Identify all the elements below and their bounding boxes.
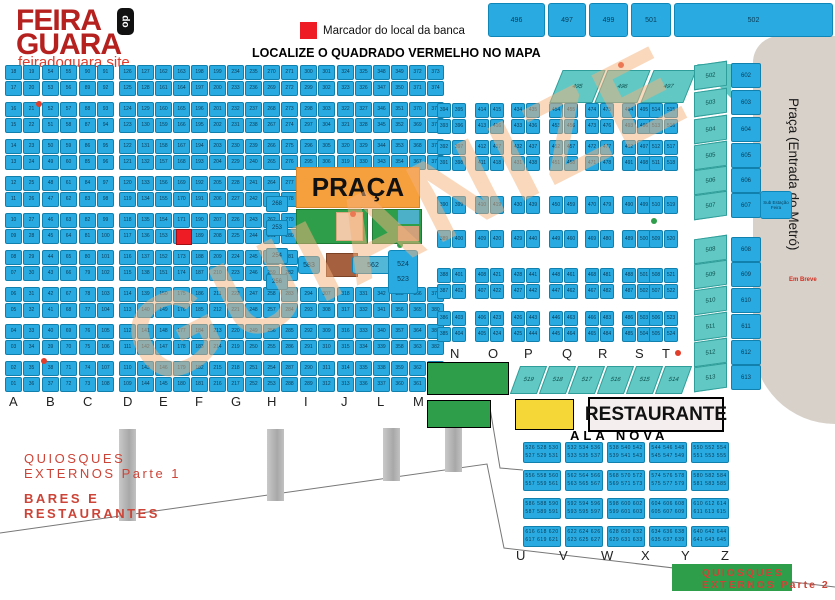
stall-cell[interactable]: 460 bbox=[564, 230, 578, 248]
ala-nova-block[interactable]: 634 636 638635 637 639 bbox=[649, 526, 687, 547]
stall-cell[interactable]: 471 bbox=[585, 156, 599, 171]
stall-cell[interactable]: 151 bbox=[155, 266, 172, 281]
stall-cell[interactable]: 266 bbox=[263, 139, 280, 154]
stall-cell[interactable]: 480 bbox=[600, 230, 614, 248]
stall-cell[interactable]: 239 bbox=[245, 139, 262, 154]
stall-cell[interactable]: 52 bbox=[42, 102, 59, 117]
stall-cell[interactable]: 418 bbox=[490, 156, 504, 171]
stall-cell[interactable]: 293 bbox=[300, 303, 317, 318]
stall-cell[interactable]: 87 bbox=[79, 118, 96, 133]
stall-cell[interactable]: 268 bbox=[263, 102, 280, 117]
stall-cell[interactable]: 520 bbox=[664, 230, 678, 248]
stall-cell[interactable]: 01 bbox=[5, 377, 22, 392]
stall-cell[interactable]: 69 bbox=[60, 324, 77, 339]
stall-cell[interactable]: 18 bbox=[5, 65, 22, 80]
stall-cell[interactable]: 470 bbox=[585, 196, 599, 214]
stall-cell[interactable]: 401 bbox=[452, 268, 466, 283]
stall-cell[interactable]: 205 bbox=[209, 176, 226, 191]
ala-nova-block[interactable]: 538 540 542539 541 543 bbox=[607, 442, 645, 463]
stall-cell[interactable]: 362 bbox=[409, 361, 426, 376]
stall-cell[interactable]: 388 bbox=[437, 268, 451, 283]
stall-cell[interactable]: 199 bbox=[209, 65, 226, 80]
stall-cell[interactable]: 230 bbox=[227, 139, 244, 154]
stall-cell[interactable]: 603 bbox=[731, 90, 761, 115]
stall-cell[interactable]: 613 bbox=[731, 365, 761, 390]
stall-cell[interactable]: 479 bbox=[600, 196, 614, 214]
stall-cell[interactable]: 99 bbox=[97, 213, 114, 228]
stall-cell[interactable]: 211 bbox=[209, 287, 226, 302]
stall-cell[interactable]: 212 bbox=[209, 303, 226, 318]
stall-cell[interactable]: 292 bbox=[300, 324, 317, 339]
stall-cell[interactable]: 325 bbox=[355, 65, 372, 80]
stall-cell[interactable]: 98 bbox=[97, 192, 114, 207]
stall-cell[interactable]: 70 bbox=[60, 340, 77, 355]
stall-cell[interactable]: 482 bbox=[600, 284, 614, 299]
stall-cell[interactable]: 285 bbox=[281, 324, 298, 339]
stall-cell[interactable]: 92 bbox=[97, 81, 114, 96]
stall-cell[interactable]: 334 bbox=[355, 340, 372, 355]
stall-cell[interactable]: 16 bbox=[5, 102, 22, 117]
stall-cell[interactable]: 154 bbox=[155, 213, 172, 228]
stall-cell[interactable]: 223 bbox=[227, 266, 244, 281]
stall-cell[interactable]: 604 bbox=[731, 117, 761, 142]
stall-cell[interactable]: 403 bbox=[452, 311, 466, 326]
stall-cell[interactable]: 390 bbox=[437, 196, 451, 214]
stall-cell[interactable]: 163 bbox=[173, 65, 190, 80]
stall-cell[interactable]: 04 bbox=[5, 324, 22, 339]
stall-cell[interactable]: 12 bbox=[5, 176, 22, 191]
stall-cell[interactable]: 426 bbox=[511, 311, 525, 326]
stall-cell[interactable]: 78 bbox=[79, 287, 96, 302]
ala-nova-block[interactable]: 550 552 554551 553 555 bbox=[691, 442, 729, 463]
stall-cell[interactable]: 357 bbox=[391, 324, 408, 339]
stall-cell[interactable]: 413 bbox=[475, 119, 489, 134]
stall-cell[interactable]: 53 bbox=[42, 81, 59, 96]
stall-cell[interactable]: 65 bbox=[60, 250, 77, 265]
stall-cell[interactable]: 607 bbox=[731, 193, 761, 218]
stall-cell[interactable]: 449 bbox=[549, 230, 563, 248]
stall-cell[interactable]: 109 bbox=[119, 377, 136, 392]
stall-cell[interactable]: 312 bbox=[318, 377, 335, 392]
stall-cell[interactable]: 145 bbox=[155, 377, 172, 392]
stall-cell[interactable]: 73 bbox=[79, 377, 96, 392]
stall-cell[interactable]: 371 bbox=[409, 81, 426, 96]
stall-cell[interactable]: 524 bbox=[664, 327, 678, 342]
stall-cell[interactable]: 85 bbox=[79, 155, 96, 170]
stall-cell[interactable]: 148 bbox=[155, 324, 172, 339]
stall-cell[interactable]: 287 bbox=[281, 361, 298, 376]
stall-cell[interactable]: 297 bbox=[300, 118, 317, 133]
stall-cell[interactable]: 338 bbox=[373, 361, 390, 376]
stall-cell[interactable]: 311 bbox=[318, 361, 335, 376]
stall-524-523[interactable]: 524 523 bbox=[388, 250, 418, 294]
stall-cell[interactable]: 50 bbox=[42, 139, 59, 154]
stall-cell[interactable]: 466 bbox=[585, 311, 599, 326]
stall-cell[interactable]: 491 bbox=[622, 156, 636, 171]
stall-cell[interactable]: 115 bbox=[119, 266, 136, 281]
stall-cell[interactable]: 127 bbox=[137, 65, 154, 80]
stall-cell[interactable]: 522 bbox=[664, 284, 678, 299]
stall-cell[interactable]: 299 bbox=[300, 81, 317, 96]
stall-cell[interactable]: 155 bbox=[155, 192, 172, 207]
stall-cell[interactable]: 602 bbox=[731, 63, 761, 88]
stall-cell[interactable]: 294 bbox=[300, 287, 317, 302]
stall-cell[interactable]: 452 bbox=[549, 140, 563, 155]
stall-cell[interactable]: 110 bbox=[119, 361, 136, 376]
stall-cell[interactable]: 347 bbox=[373, 81, 390, 96]
stall-cell[interactable]: 42 bbox=[42, 287, 59, 302]
stall-cell[interactable]: 236 bbox=[245, 81, 262, 96]
stall-cell[interactable]: 467 bbox=[585, 284, 599, 299]
stall-cell[interactable]: 435 bbox=[526, 103, 540, 118]
stall-cell[interactable]: 116 bbox=[119, 250, 136, 265]
stall-cell[interactable]: 323 bbox=[337, 81, 354, 96]
stall-cell[interactable]: 121 bbox=[119, 155, 136, 170]
stall-cell[interactable]: 324 bbox=[337, 65, 354, 80]
stall-cell[interactable]: 457 bbox=[564, 140, 578, 155]
stall-cell[interactable]: 286 bbox=[281, 340, 298, 355]
stall-cell[interactable]: 214 bbox=[209, 340, 226, 355]
stall-cell[interactable]: 254 bbox=[263, 361, 280, 376]
stall-cell[interactable]: 487 bbox=[622, 284, 636, 299]
stall-cell[interactable]: 90 bbox=[79, 65, 96, 80]
stall-cell[interactable]: 238 bbox=[245, 118, 262, 133]
stall-cell[interactable]: 88 bbox=[79, 102, 96, 117]
stall-cell[interactable]: 465 bbox=[585, 327, 599, 342]
stall-cell[interactable]: 451 bbox=[549, 156, 563, 171]
ala-nova-block[interactable]: 562 564 566563 565 567 bbox=[565, 470, 603, 491]
stall-cell[interactable]: 60 bbox=[60, 155, 77, 170]
stall-cell[interactable]: 432 bbox=[511, 140, 525, 155]
stall-cell[interactable]: 167 bbox=[173, 139, 190, 154]
stall-cell[interactable]: 97 bbox=[97, 176, 114, 191]
stall-cell[interactable]: 246 bbox=[245, 266, 262, 281]
stall-cell[interactable]: 291 bbox=[300, 340, 317, 355]
stall-cell[interactable]: 397 bbox=[452, 140, 466, 155]
stall-cell[interactable]: 133 bbox=[137, 176, 154, 191]
ala-nova-block[interactable]: 610 612 614611 613 615 bbox=[691, 498, 729, 519]
stall-cell[interactable]: 195 bbox=[191, 118, 208, 133]
stall-cell[interactable]: 130 bbox=[137, 118, 154, 133]
stall-cell[interactable]: 288 bbox=[281, 377, 298, 392]
stall-cell[interactable]: 118 bbox=[119, 213, 136, 228]
stall-cell[interactable]: 245 bbox=[245, 250, 262, 265]
stall-cell[interactable]: 255 bbox=[263, 340, 280, 355]
stall-cell[interactable]: 421 bbox=[490, 268, 504, 283]
stall-cell[interactable]: 08 bbox=[5, 250, 22, 265]
stall-cell[interactable]: 464 bbox=[564, 327, 578, 342]
ala-nova-block[interactable]: 616 618 620617 619 621 bbox=[523, 526, 561, 547]
stall-cell[interactable]: 132 bbox=[137, 155, 154, 170]
stall-cell[interactable]: 610 bbox=[731, 288, 761, 313]
stall-cell[interactable]: 241 bbox=[245, 176, 262, 191]
stall-cell[interactable]: 346 bbox=[373, 102, 390, 117]
stall-cell[interactable]: 231 bbox=[227, 118, 244, 133]
stall-cell[interactable]: 305 bbox=[318, 139, 335, 154]
stall-cell[interactable]: 201 bbox=[209, 102, 226, 117]
stall-cell[interactable]: 226 bbox=[227, 213, 244, 228]
stall-cell[interactable]: 253 bbox=[266, 220, 288, 236]
stall-cell[interactable]: 353 bbox=[391, 139, 408, 154]
stall-cell[interactable]: 224 bbox=[227, 250, 244, 265]
stall-cell[interactable]: 237 bbox=[245, 102, 262, 117]
stall-cell[interactable]: 123 bbox=[119, 118, 136, 133]
stall-cell[interactable]: 424 bbox=[490, 327, 504, 342]
stall-cell[interactable]: 234 bbox=[227, 65, 244, 80]
stall-cell[interactable]: 55 bbox=[60, 65, 77, 80]
stall-cell[interactable]: 410 bbox=[475, 196, 489, 214]
stall-cell[interactable]: 509 bbox=[694, 260, 727, 290]
stall-cell[interactable]: 442 bbox=[526, 284, 540, 299]
stall-583[interactable]: 583 bbox=[298, 256, 320, 274]
stall-cell[interactable]: 33 bbox=[23, 324, 40, 339]
stall-cell[interactable]: 208 bbox=[209, 229, 226, 244]
stall-cell[interactable]: 107 bbox=[97, 361, 114, 376]
ala-nova-block[interactable]: 568 570 572569 571 573 bbox=[607, 470, 645, 491]
stall-cell[interactable]: 182 bbox=[191, 361, 208, 376]
stall-cell[interactable]: 192 bbox=[191, 176, 208, 191]
stall-cell[interactable]: 95 bbox=[97, 139, 114, 154]
stall-cell[interactable]: 83 bbox=[79, 192, 96, 207]
stall-cell[interactable]: 251 bbox=[245, 361, 262, 376]
stall-cell[interactable]: 185 bbox=[191, 303, 208, 318]
stall-cell[interactable]: 17 bbox=[5, 81, 22, 96]
stall-cell[interactable]: 168 bbox=[173, 155, 190, 170]
stall-cell[interactable]: 298 bbox=[300, 102, 317, 117]
stall-cell[interactable]: 444 bbox=[526, 327, 540, 342]
stall-cell[interactable]: 41 bbox=[42, 303, 59, 318]
stall-cell[interactable]: 79 bbox=[79, 266, 96, 281]
stall-cell[interactable]: 404 bbox=[452, 327, 466, 342]
stall-cell[interactable]: 210 bbox=[209, 266, 226, 281]
stall-cell[interactable]: 505 bbox=[649, 327, 663, 342]
stall-cell[interactable]: 478 bbox=[600, 156, 614, 171]
stall-cell[interactable]: 122 bbox=[119, 139, 136, 154]
stall-cell[interactable]: 507 bbox=[649, 284, 663, 299]
stall-cell[interactable]: 284 bbox=[281, 303, 298, 318]
stall-cell[interactable]: 441 bbox=[526, 268, 540, 283]
stall-cell[interactable]: 513 bbox=[649, 119, 663, 134]
stall-cell[interactable]: 407 bbox=[475, 284, 489, 299]
stall-cell[interactable]: 242 bbox=[245, 192, 262, 207]
stall-cell[interactable]: 395 bbox=[452, 103, 466, 118]
stall-cell[interactable]: 253 bbox=[263, 377, 280, 392]
stall-cell[interactable]: 316 bbox=[337, 324, 354, 339]
stall-cell[interactable]: 63 bbox=[60, 213, 77, 228]
stall-cell[interactable]: 48 bbox=[42, 176, 59, 191]
stall-cell[interactable]: 419 bbox=[490, 196, 504, 214]
stall-cell[interactable]: 137 bbox=[137, 250, 154, 265]
stall-cell[interactable]: 187 bbox=[191, 266, 208, 281]
stall-cell[interactable]: 510 bbox=[694, 286, 727, 316]
stall-cell[interactable]: 51 bbox=[42, 118, 59, 133]
stall-cell[interactable]: 58 bbox=[60, 118, 77, 133]
stall-cell[interactable]: 416 bbox=[490, 119, 504, 134]
stall-cell[interactable]: 198 bbox=[191, 65, 208, 80]
stall-cell[interactable]: 178 bbox=[173, 340, 190, 355]
stall-cell[interactable]: 391 bbox=[437, 156, 451, 171]
stall-cell[interactable]: 128 bbox=[137, 81, 154, 96]
stall-cell[interactable]: 181 bbox=[191, 377, 208, 392]
stall-cell[interactable]: 164 bbox=[173, 81, 190, 96]
stall-cell[interactable]: 494 bbox=[622, 103, 636, 118]
stall-cell[interactable]: 247 bbox=[245, 287, 262, 302]
stall-cell[interactable]: 213 bbox=[209, 324, 226, 339]
stall-cell[interactable]: 352 bbox=[391, 118, 408, 133]
stall-cell[interactable]: 386 bbox=[437, 311, 451, 326]
stall-cell[interactable]: 143 bbox=[137, 361, 154, 376]
stall-cell[interactable]: 322 bbox=[337, 102, 354, 117]
stall-cell[interactable]: 358 bbox=[391, 340, 408, 355]
stall-cell[interactable]: 54 bbox=[42, 65, 59, 80]
stall-cell[interactable]: 106 bbox=[97, 340, 114, 355]
stall-cell[interactable]: 43 bbox=[42, 266, 59, 281]
stall-cell[interactable]: 104 bbox=[97, 303, 114, 318]
stall-cell[interactable]: 344 bbox=[373, 139, 390, 154]
stall-cell[interactable]: 492 bbox=[622, 140, 636, 155]
stall-cell[interactable]: 434 bbox=[511, 103, 525, 118]
stall-cell[interactable]: 497 bbox=[640, 70, 696, 103]
stall-cell[interactable]: 436 bbox=[526, 119, 540, 134]
stall-cell[interactable]: 29 bbox=[23, 250, 40, 265]
stall-cell[interactable]: 374 bbox=[427, 81, 444, 96]
stall-cell[interactable]: 14 bbox=[5, 139, 22, 154]
ala-nova-block[interactable]: 556 558 560557 559 561 bbox=[523, 470, 561, 491]
stall-cell[interactable]: 427 bbox=[511, 284, 525, 299]
stall-cell[interactable]: 503 bbox=[694, 88, 727, 118]
stall-cell[interactable]: 10 bbox=[5, 213, 22, 228]
stall-cell[interactable]: 370 bbox=[409, 102, 426, 117]
stall-cell[interactable]: 264 bbox=[263, 176, 280, 191]
stall-cell[interactable]: 455 bbox=[564, 103, 578, 118]
stall-cell[interactable]: 473 bbox=[585, 119, 599, 134]
stall-cell[interactable]: 256 bbox=[266, 274, 288, 290]
stall-cell[interactable]: 05 bbox=[5, 303, 22, 318]
stall-cell[interactable]: 611 bbox=[731, 314, 761, 339]
ala-nova-block[interactable]: 592 594 596593 595 597 bbox=[565, 498, 603, 519]
stall-cell[interactable]: 235 bbox=[245, 65, 262, 80]
stall-cell[interactable]: 468 bbox=[585, 268, 599, 283]
ala-nova-block[interactable]: 604 606 608605 607 609 bbox=[649, 498, 687, 519]
stall-cell[interactable]: 125 bbox=[119, 81, 136, 96]
stall-cell[interactable]: 360 bbox=[391, 377, 408, 392]
stall-cell[interactable]: 363 bbox=[409, 340, 426, 355]
stall-cell[interactable]: 496 bbox=[488, 3, 545, 37]
stall-cell[interactable]: 340 bbox=[373, 324, 390, 339]
ala-nova-block[interactable]: 532 534 536533 535 537 bbox=[565, 442, 603, 463]
stall-cell[interactable]: 49 bbox=[42, 155, 59, 170]
stall-cell[interactable]: 476 bbox=[600, 119, 614, 134]
stall-cell[interactable]: 75 bbox=[79, 340, 96, 355]
stall-cell[interactable]: 134 bbox=[137, 192, 154, 207]
stall-cell[interactable]: 40 bbox=[42, 324, 59, 339]
stall-cell[interactable]: 243 bbox=[245, 213, 262, 228]
stall-cell[interactable]: 332 bbox=[355, 303, 372, 318]
stall-cell[interactable]: 206 bbox=[209, 192, 226, 207]
stall-cell[interactable]: 225 bbox=[227, 229, 244, 244]
stall-cell[interactable]: 197 bbox=[191, 81, 208, 96]
stall-cell[interactable]: 400 bbox=[452, 230, 466, 248]
stall-cell[interactable]: 502 bbox=[674, 3, 833, 37]
stall-cell[interactable]: 24 bbox=[23, 155, 40, 170]
stall-cell[interactable]: 82 bbox=[79, 213, 96, 228]
stall-cell[interactable]: 144 bbox=[137, 377, 154, 392]
ala-nova-block[interactable]: 622 624 626623 625 627 bbox=[565, 526, 603, 547]
stall-cell[interactable]: 499 bbox=[589, 3, 628, 37]
stall-cell[interactable]: 289 bbox=[300, 377, 317, 392]
stall-cell[interactable]: 20 bbox=[23, 81, 40, 96]
stall-cell[interactable]: 84 bbox=[79, 176, 96, 191]
stall-cell[interactable]: 149 bbox=[155, 303, 172, 318]
stall-cell[interactable]: 215 bbox=[209, 361, 226, 376]
stall-cell[interactable]: 265 bbox=[263, 155, 280, 170]
stall-cell[interactable]: 254 bbox=[266, 248, 288, 264]
stall-cell[interactable]: 46 bbox=[42, 213, 59, 228]
stall-cell[interactable]: 170 bbox=[173, 192, 190, 207]
stall-cell[interactable]: 443 bbox=[526, 311, 540, 326]
stall-cell[interactable]: 257 bbox=[263, 303, 280, 318]
stall-cell[interactable]: 475 bbox=[600, 103, 614, 118]
stall-cell[interactable]: 27 bbox=[23, 213, 40, 228]
stall-cell[interactable]: 483 bbox=[600, 311, 614, 326]
stall-cell[interactable]: 414 bbox=[475, 103, 489, 118]
ala-nova-block[interactable]: 580 582 584581 583 585 bbox=[691, 470, 729, 491]
stall-cell[interactable]: 301 bbox=[318, 65, 335, 80]
stall-cell[interactable]: 56 bbox=[60, 81, 77, 96]
stall-cell[interactable]: 217 bbox=[227, 377, 244, 392]
stall-cell[interactable]: 269 bbox=[263, 81, 280, 96]
stall-cell[interactable]: 171 bbox=[173, 213, 190, 228]
stall-cell[interactable]: 74 bbox=[79, 361, 96, 376]
stall-cell[interactable]: 135 bbox=[137, 213, 154, 228]
stall-cell[interactable]: 420 bbox=[490, 230, 504, 248]
stall-cell[interactable]: 124 bbox=[119, 102, 136, 117]
stall-cell[interactable]: 57 bbox=[60, 102, 77, 117]
stall-cell[interactable]: 131 bbox=[137, 139, 154, 154]
stall-cell[interactable]: 138 bbox=[137, 266, 154, 281]
stall-cell[interactable]: 177 bbox=[173, 324, 190, 339]
stall-cell[interactable]: 497 bbox=[548, 3, 586, 37]
stall-cell[interactable]: 450 bbox=[549, 196, 563, 214]
stall-cell[interactable]: 393 bbox=[437, 119, 451, 134]
stall-cell[interactable]: 308 bbox=[318, 303, 335, 318]
stall-cell[interactable]: 248 bbox=[245, 303, 262, 318]
stall-cell[interactable]: 417 bbox=[490, 140, 504, 155]
stall-cell[interactable]: 157 bbox=[155, 155, 172, 170]
stall-cell[interactable]: 219 bbox=[227, 340, 244, 355]
stall-cell[interactable]: 504 bbox=[694, 115, 727, 145]
stall-cell[interactable]: 335 bbox=[355, 361, 372, 376]
stall-cell[interactable]: 458 bbox=[564, 156, 578, 171]
stall-cell[interactable]: 111 bbox=[119, 340, 136, 355]
stall-cell[interactable]: 423 bbox=[490, 311, 504, 326]
stall-cell[interactable]: 422 bbox=[490, 284, 504, 299]
stall-cell[interactable]: 156 bbox=[155, 176, 172, 191]
stall-cell[interactable]: 176 bbox=[173, 303, 190, 318]
stall-cell[interactable]: 250 bbox=[245, 340, 262, 355]
stall-cell[interactable]: 429 bbox=[511, 230, 525, 248]
stall-cell[interactable]: 331 bbox=[355, 287, 372, 302]
stall-cell[interactable]: 430 bbox=[511, 196, 525, 214]
stall-cell[interactable]: 35 bbox=[23, 361, 40, 376]
stall-cell[interactable]: 200 bbox=[209, 81, 226, 96]
stall-cell[interactable]: 402 bbox=[452, 284, 466, 299]
stall-cell[interactable]: 364 bbox=[409, 324, 426, 339]
stall-cell[interactable]: 313 bbox=[337, 377, 354, 392]
stall-cell[interactable]: 141 bbox=[137, 324, 154, 339]
stall-cell[interactable]: 252 bbox=[245, 377, 262, 392]
stall-cell[interactable]: 32 bbox=[23, 303, 40, 318]
